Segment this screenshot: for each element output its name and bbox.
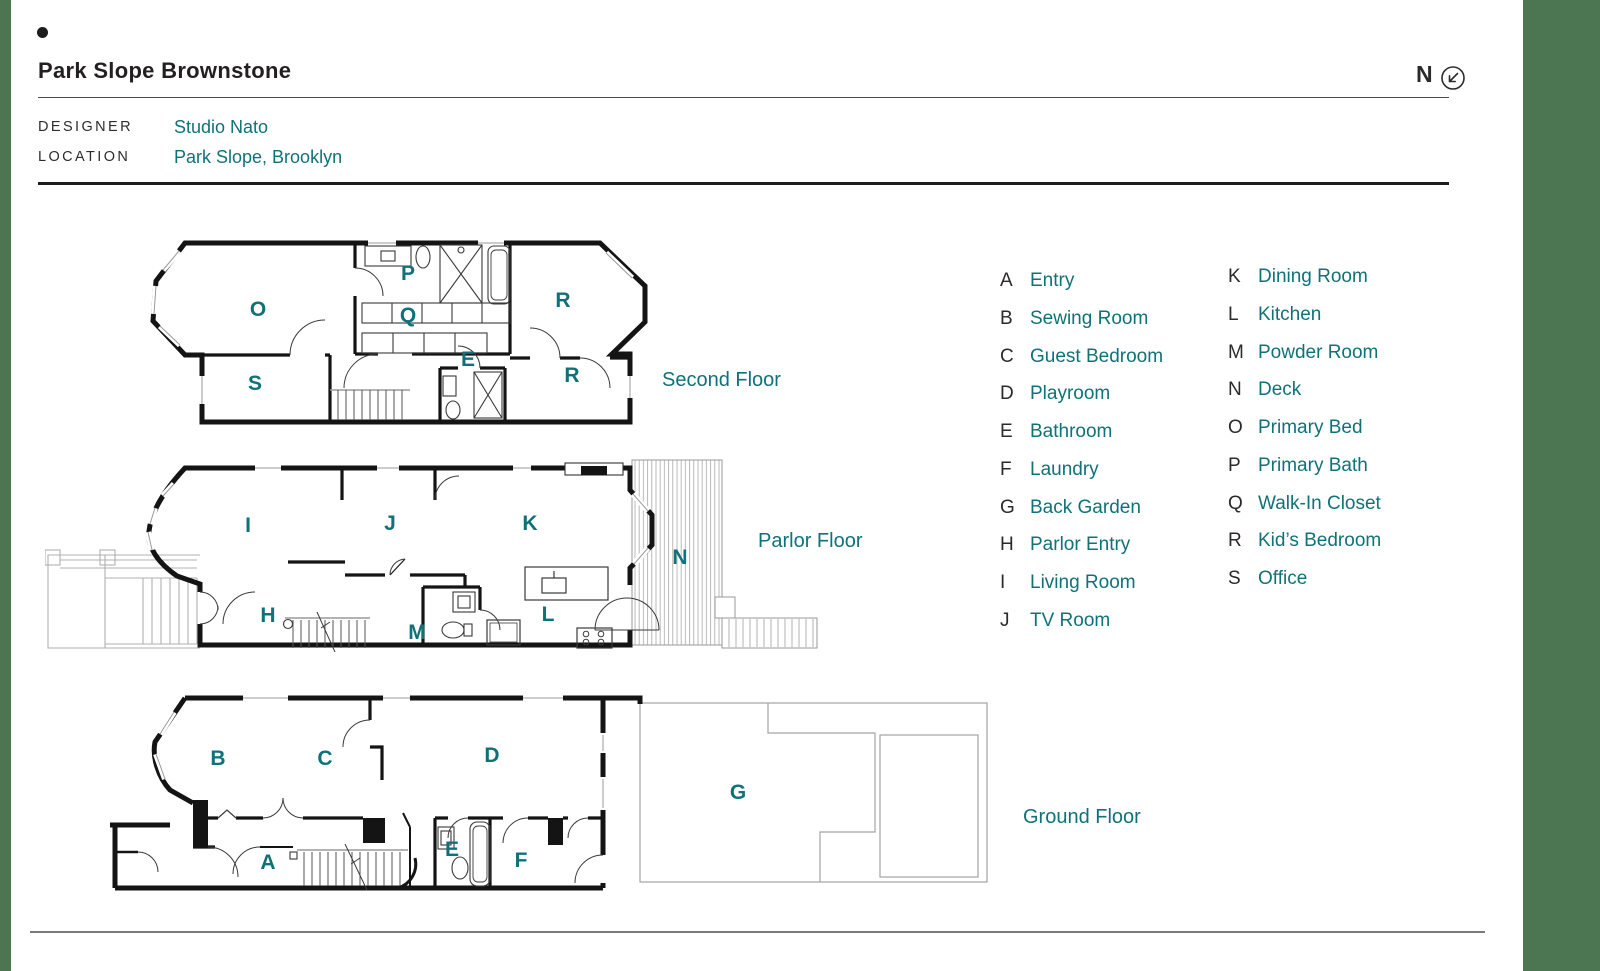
parlor-floor-plan: I J K N H M L <box>45 452 820 652</box>
legend-column-2: KDining Room LKitchen MPowder Room NDeck… <box>1228 266 1381 606</box>
page-title: Park Slope Brownstone <box>38 58 291 84</box>
room-label-sewing-room: B <box>210 747 225 770</box>
compass-arrow-icon <box>1440 65 1466 91</box>
legend-letter: A <box>1000 270 1030 292</box>
legend-label: Bathroom <box>1030 421 1112 443</box>
front-stoop <box>45 550 200 648</box>
room-label-office: S <box>248 372 262 395</box>
legend-letter: S <box>1228 568 1258 590</box>
room-label-bathroom-gf: E <box>445 838 459 861</box>
second-floor-plan: O P Q R S E R <box>140 226 652 428</box>
header-rule <box>38 97 1449 98</box>
legend-row: KDining Room <box>1228 266 1381 304</box>
legend-label: Walk-In Closet <box>1258 493 1381 515</box>
ground-floor-plan: B C D A E F G <box>108 682 1008 894</box>
legend-label: Office <box>1258 568 1307 590</box>
parlor-floor-label: Parlor Floor <box>758 530 862 553</box>
legend-row: GBack Garden <box>1000 497 1163 535</box>
legend-letter: L <box>1228 304 1258 326</box>
legend-letter: F <box>1000 459 1030 481</box>
legend-letter: O <box>1228 417 1258 439</box>
compass-north-label: N <box>1416 61 1433 88</box>
legend-letter: M <box>1228 342 1258 364</box>
designer-label: DESIGNER <box>38 119 133 135</box>
room-label-laundry: F <box>515 849 528 872</box>
legend-letter: D <box>1000 383 1030 405</box>
room-label-walk-in-closet: Q <box>400 304 416 327</box>
back-garden-area <box>640 703 987 882</box>
floorplan-sheet: { "page": { "title": "Park Slope Brownst… <box>0 0 1600 971</box>
legend-row: AEntry <box>1000 270 1163 308</box>
second-floor-label: Second Floor <box>662 369 781 392</box>
legend-row: FLaundry <box>1000 459 1163 497</box>
legend-letter: G <box>1000 497 1030 519</box>
legend-label: Sewing Room <box>1030 308 1148 330</box>
footer-rule <box>30 931 1485 933</box>
legend-row: NDeck <box>1228 379 1381 417</box>
room-label-tv-room: J <box>384 512 396 535</box>
designer-value[interactable]: Studio Nato <box>174 117 268 138</box>
legend-row: RKid’s Bedroom <box>1228 530 1381 568</box>
legend-label: Kid’s Bedroom <box>1258 530 1381 552</box>
legend-letter: C <box>1000 346 1030 368</box>
legend-row: ILiving Room <box>1000 572 1163 610</box>
legend-column-1: AEntry BSewing Room CGuest Bedroom DPlay… <box>1000 270 1163 648</box>
legend-row: HParlor Entry <box>1000 534 1163 572</box>
legend-label: Primary Bath <box>1258 455 1368 477</box>
legend-label: Parlor Entry <box>1030 534 1130 556</box>
legend-label: Living Room <box>1030 572 1136 594</box>
ground-floor-label: Ground Floor <box>1023 806 1141 829</box>
legend-row: LKitchen <box>1228 304 1381 342</box>
legend-row: DPlayroom <box>1000 383 1163 421</box>
room-label-dining-room: K <box>522 512 537 535</box>
legend-row: JTV Room <box>1000 610 1163 648</box>
legend-row: OPrimary Bed <box>1228 417 1381 455</box>
room-label-primary-bed: O <box>250 298 266 321</box>
room-label-powder-room: M <box>408 621 426 644</box>
room-label-living-room: I <box>245 514 251 537</box>
legend-letter: N <box>1228 379 1258 401</box>
bullet-dot <box>37 27 48 38</box>
legend-label: Primary Bed <box>1258 417 1363 439</box>
legend-letter: K <box>1228 266 1258 288</box>
legend-row: BSewing Room <box>1000 308 1163 346</box>
legend-letter: J <box>1000 610 1030 632</box>
legend-letter: B <box>1000 308 1030 330</box>
section-rule <box>38 182 1449 185</box>
legend-letter: E <box>1000 421 1030 443</box>
room-label-parlor-entry: H <box>260 604 275 627</box>
location-value[interactable]: Park Slope, Brooklyn <box>174 147 342 168</box>
legend-letter: I <box>1000 572 1030 594</box>
legend-row: SOffice <box>1228 568 1381 606</box>
room-label-kids-bedroom-2: R <box>564 364 579 387</box>
legend-row: EBathroom <box>1000 421 1163 459</box>
room-label-guest-bedroom: C <box>317 747 332 770</box>
legend-label: Deck <box>1258 379 1301 401</box>
room-label-bathroom-2f: E <box>461 348 475 371</box>
legend-label: Playroom <box>1030 383 1110 405</box>
room-label-primary-bath: P <box>401 262 415 285</box>
legend-letter: R <box>1228 530 1258 552</box>
room-label-kids-bedroom-1: R <box>555 289 570 312</box>
legend-label: Guest Bedroom <box>1030 346 1163 368</box>
legend-label: Entry <box>1030 270 1074 292</box>
legend-label: Kitchen <box>1258 304 1321 326</box>
right-green-band <box>1523 0 1600 971</box>
legend-label: Laundry <box>1030 459 1099 481</box>
legend-label: Back Garden <box>1030 497 1141 519</box>
legend-letter: Q <box>1228 493 1258 515</box>
legend-row: PPrimary Bath <box>1228 455 1381 493</box>
legend-row: QWalk-In Closet <box>1228 493 1381 531</box>
legend-row: MPowder Room <box>1228 342 1381 380</box>
legend-letter: H <box>1000 534 1030 556</box>
room-label-playroom: D <box>484 744 499 767</box>
room-label-deck: N <box>672 546 687 569</box>
legend-label: TV Room <box>1030 610 1110 632</box>
room-label-kitchen: L <box>542 603 555 626</box>
location-label: LOCATION <box>38 149 130 165</box>
legend-label: Powder Room <box>1258 342 1378 364</box>
legend-row: CGuest Bedroom <box>1000 346 1163 384</box>
legend-letter: P <box>1228 455 1258 477</box>
legend-label: Dining Room <box>1258 266 1368 288</box>
room-label-entry: A <box>260 851 275 874</box>
room-label-back-garden: G <box>730 781 746 804</box>
left-green-band <box>0 0 11 971</box>
